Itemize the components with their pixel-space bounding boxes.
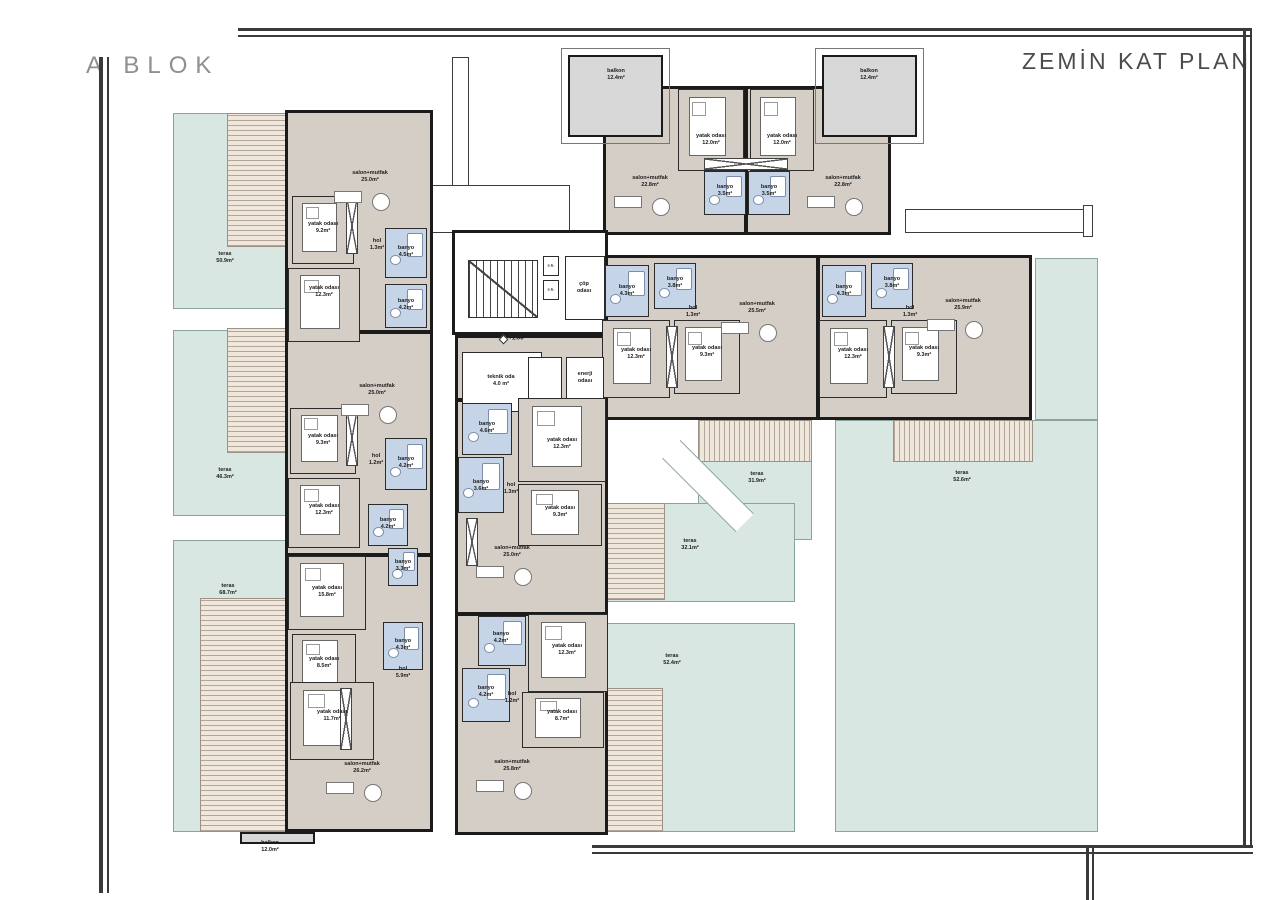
tech-room [528, 357, 562, 399]
table [364, 784, 382, 802]
room-label: yatak odası 12.0m² [767, 133, 797, 147]
wardrobe [346, 410, 358, 466]
level-label: +1.00 [508, 335, 523, 343]
block-title: A BLOK [86, 52, 219, 80]
sofa [927, 319, 955, 331]
room-label: yatak odası 12.3m² [309, 503, 339, 517]
room-label: salon+mutfak 25.0m² [352, 170, 388, 184]
terrace-label: teras 32.1m² [681, 538, 698, 552]
frame-line [1086, 848, 1089, 900]
room-label: balkon 12.0m² [261, 840, 279, 854]
room-label: yatak odası 9.3m² [692, 345, 722, 359]
room-label: balkon 12.4m² [860, 68, 878, 82]
room-label: hol 1.2m² [369, 453, 383, 467]
room-label: banyo 3.5m² [717, 184, 733, 198]
room-label: enerji odası [578, 371, 593, 385]
frame-line [592, 852, 1253, 854]
wardrobe [883, 326, 895, 388]
deck [698, 420, 812, 462]
bed [300, 275, 341, 328]
room-label: yatak odası 12.3m² [838, 347, 868, 361]
room-label: banyo 4.3m² [836, 284, 852, 298]
terrace-label: teras 52.6m² [953, 470, 970, 484]
room-label: salon+mutfak 25.0m² [359, 383, 395, 397]
room-label: hol 1.2m² [505, 691, 519, 705]
room-label: yatak odası 9.2m² [308, 221, 338, 235]
walkway [432, 185, 570, 233]
terrace-label: teras 68.7m² [219, 583, 236, 597]
sofa [326, 782, 354, 794]
terrace [1035, 258, 1098, 420]
walkway [905, 209, 1090, 233]
room-label: yatak odası 11.7m² [317, 709, 347, 723]
room-label: banyo 3.8m² [884, 276, 900, 290]
table [372, 193, 390, 211]
terrace-label: teras 50.9m² [216, 251, 233, 265]
deck [227, 113, 290, 247]
deck [200, 598, 288, 832]
terrace-label: teras 46.3m² [216, 467, 233, 481]
room-label: banyo 4.2m² [478, 685, 494, 699]
terrace-label: teras 31.9m² [748, 471, 765, 485]
room-label: hol 1.3m² [504, 482, 518, 496]
room-label: yatak odası 9.3m² [545, 505, 575, 519]
frame-line [238, 28, 1252, 31]
floor-plan: A BLOK ZEMİN KAT PLAN teras 50.9m²teras … [0, 0, 1273, 900]
frame-line [99, 57, 103, 893]
room-label: s.b. [548, 263, 555, 268]
room-label: salon+mutfak 22.8m² [632, 175, 668, 189]
sofa [807, 196, 835, 208]
room-label: salon+mutfak 25.9m² [945, 298, 981, 312]
table [514, 782, 532, 800]
deck [893, 420, 1033, 462]
room-label: banyo 4.6m² [479, 421, 495, 435]
room-label: banyo 3.6m² [473, 479, 489, 493]
deck [227, 328, 290, 453]
room-label: salon+mutfak 26.2m² [344, 761, 380, 775]
room-label: salon+mutfak 25.8m² [494, 759, 530, 773]
staircase [468, 260, 538, 318]
sofa [614, 196, 642, 208]
room-label: yatak odası 9.3m² [909, 345, 939, 359]
terrace-label: teras 52.4m² [663, 653, 680, 667]
room-label: banyo 3.8m² [667, 276, 683, 290]
room-label: yatak odası 12.3m² [621, 347, 651, 361]
frame-line [592, 845, 1253, 848]
table [845, 198, 863, 216]
deck [600, 503, 665, 600]
frame-line [238, 35, 1252, 37]
room-label: banyo 4.5m² [398, 245, 414, 259]
frame-line [107, 57, 109, 893]
sofa [721, 322, 749, 334]
room-label: banyo 4.2m² [398, 456, 414, 470]
room-label: hol 1.3m² [903, 305, 917, 319]
room-label: çöp odası [577, 281, 591, 295]
plan-title: ZEMİN KAT PLAN [1022, 48, 1251, 75]
room-label: yatak odası 9.3m² [308, 433, 338, 447]
room-label: banyo 3.3m² [395, 559, 411, 573]
room-label: hol 1.3m² [370, 238, 384, 252]
wardrobe [666, 326, 678, 388]
walkway [1083, 205, 1093, 237]
sofa [476, 780, 504, 792]
room-label: banyo 4.2m² [380, 517, 396, 531]
room-label: salon+mutfak 25.0m² [494, 545, 530, 559]
frame-line [1243, 28, 1246, 848]
room-label: hol 5.9m² [396, 666, 410, 680]
wardrobe [704, 158, 788, 170]
wardrobe [466, 518, 478, 566]
room-label: yatak odası 12.3m² [552, 643, 582, 657]
room-label: banyo 3.5m² [761, 184, 777, 198]
room-label: teknik oda 4.0 m² [487, 374, 514, 388]
room-label: banyo 4.2m² [398, 298, 414, 312]
room-label: banyo 4.3m² [619, 284, 635, 298]
sofa [341, 404, 369, 416]
bed [689, 97, 726, 156]
table [965, 321, 983, 339]
room-label: banyo 4.2m² [493, 631, 509, 645]
bedroom [288, 268, 360, 342]
sofa [476, 566, 504, 578]
frame-line [1250, 28, 1252, 848]
room-label: banyo 4.3m² [395, 638, 411, 652]
room-label: yatak odası 12.3m² [309, 285, 339, 299]
table [514, 568, 532, 586]
room-label: yatak odası 15.8m² [312, 585, 342, 599]
bed [760, 97, 796, 156]
table [379, 406, 397, 424]
room-label: salon+mutfak 22.8m² [825, 175, 861, 189]
room-label: s.b. [548, 287, 555, 292]
room-label: yatak odası 8.7m² [547, 709, 577, 723]
room-label: yatak odası 12.0m² [696, 133, 726, 147]
room-label: balkon 12.4m² [607, 68, 625, 82]
room-label: salon+mutfak 25.5m² [739, 301, 775, 315]
room-label: yatak odası 12.3m² [547, 437, 577, 451]
room-label: yatak odası 8.5m² [309, 656, 339, 670]
sofa [334, 191, 362, 203]
table [652, 198, 670, 216]
wardrobe [346, 198, 358, 254]
frame-line [1092, 848, 1094, 900]
table [759, 324, 777, 342]
room-label: hol 1.3m² [686, 305, 700, 319]
